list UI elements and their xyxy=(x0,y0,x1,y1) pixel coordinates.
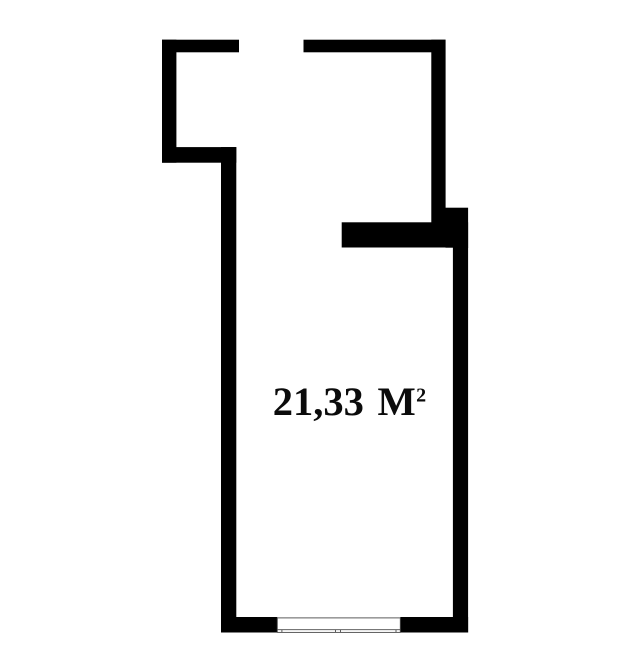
svg-text:21,33 М2: 21,33 М2 xyxy=(273,379,426,424)
